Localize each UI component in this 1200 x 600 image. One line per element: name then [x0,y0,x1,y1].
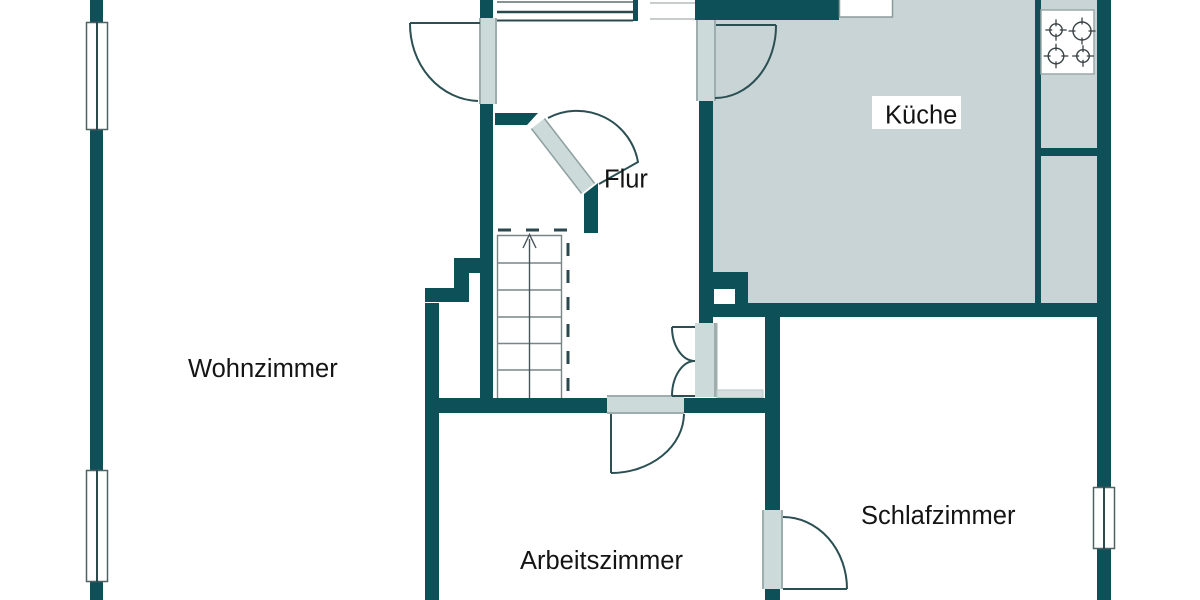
svg-text:Schlafzimmer: Schlafzimmer [861,502,1016,530]
svg-text:Flur: Flur [604,166,648,194]
svg-text:Wohnzimmer: Wohnzimmer [188,355,338,383]
svg-text:Küche: Küche [885,102,957,130]
svg-text:Arbeitszimmer: Arbeitszimmer [520,547,683,575]
